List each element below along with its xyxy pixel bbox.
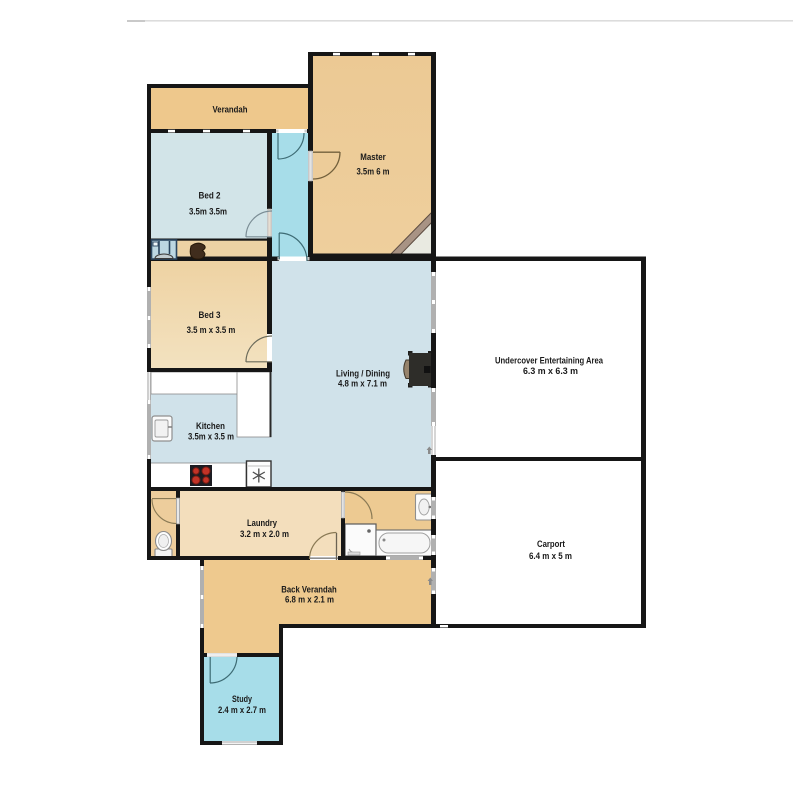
svg-text:3.5m 3.5m: 3.5m 3.5m: [189, 207, 227, 217]
svg-text:Study: Study: [232, 694, 252, 704]
svg-text:6.3 m x 6.3 m: 6.3 m x 6.3 m: [523, 366, 578, 376]
svg-text:4.8 m x 7.1 m: 4.8 m x 7.1 m: [338, 379, 387, 389]
svg-text:3.5m x 3.5 m: 3.5m x 3.5 m: [188, 432, 234, 442]
svg-text:3.5m 6 m: 3.5m 6 m: [357, 167, 390, 177]
svg-text:3.2 m x 2.0 m: 3.2 m x 2.0 m: [240, 529, 289, 539]
svg-text:Undercover Entertaining Area: Undercover Entertaining Area: [495, 356, 604, 366]
svg-text:Verandah: Verandah: [213, 105, 248, 115]
svg-text:Back Verandah: Back Verandah: [281, 585, 337, 595]
svg-text:Carport: Carport: [537, 539, 565, 549]
svg-text:3.5 m x 3.5 m: 3.5 m x 3.5 m: [187, 325, 236, 335]
svg-text:Bed 3: Bed 3: [199, 310, 221, 320]
svg-text:Bed 2: Bed 2: [199, 191, 221, 201]
svg-text:6.8 m x 2.1 m: 6.8 m x 2.1 m: [285, 595, 334, 605]
svg-text:Living / Dining: Living / Dining: [336, 369, 390, 379]
svg-text:Master: Master: [360, 152, 386, 162]
svg-text:Kitchen: Kitchen: [196, 421, 225, 431]
svg-text:Laundry: Laundry: [247, 518, 277, 528]
svg-text:6.4 m x 5 m: 6.4 m x 5 m: [529, 551, 572, 561]
svg-text:2.4 m x 2.7 m: 2.4 m x 2.7 m: [218, 705, 266, 715]
